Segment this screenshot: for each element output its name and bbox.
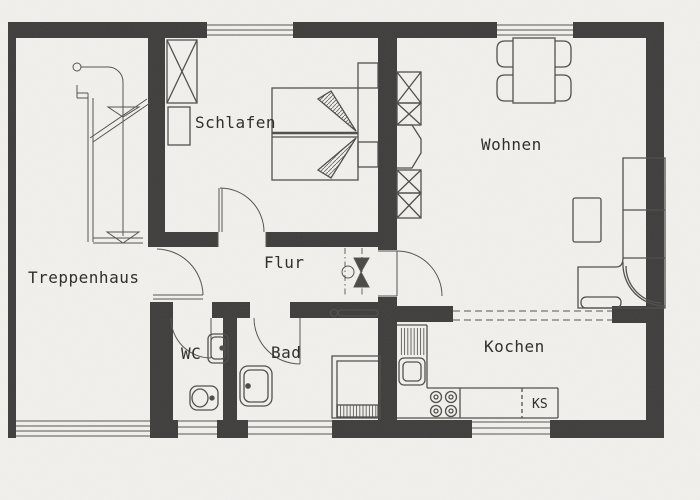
- floor-plan-svg: Treppenhaus Schlafen Wohnen Flur WC Bad …: [0, 0, 700, 500]
- scanned-floor-plan: Treppenhaus Schlafen Wohnen Flur WC Bad …: [0, 0, 700, 500]
- scan-noise-overlay: [0, 0, 700, 500]
